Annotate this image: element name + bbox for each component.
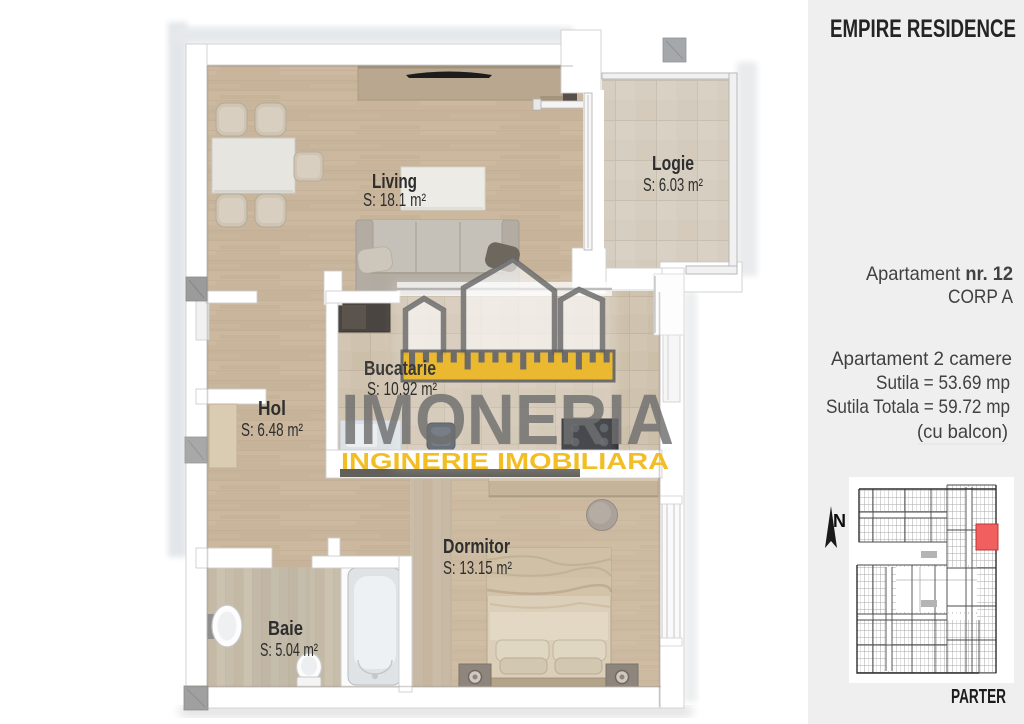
svg-text:S: 13.15 m²: S: 13.15 m² bbox=[443, 558, 512, 578]
svg-text:S: 5.04 m²: S: 5.04 m² bbox=[260, 640, 318, 660]
svg-text:Sutila Totala = 59.72 mp: Sutila Totala = 59.72 mp bbox=[826, 396, 1010, 418]
svg-text:CORP A: CORP A bbox=[948, 286, 1013, 308]
svg-text:S: 6.48 m²: S: 6.48 m² bbox=[241, 420, 303, 440]
svg-text:EMPIRE RESIDENCE: EMPIRE RESIDENCE bbox=[830, 15, 1016, 43]
svg-text:S: 18.1 m²: S: 18.1 m² bbox=[363, 190, 426, 210]
svg-text:PARTER: PARTER bbox=[951, 685, 1006, 708]
svg-text:Sutila = 53.69 mp: Sutila = 53.69 mp bbox=[876, 372, 1010, 394]
svg-text:INGINERIE IMOBILIARA: INGINERIE IMOBILIARA bbox=[341, 448, 669, 474]
svg-text:Apartament nr. 12: Apartament nr. 12 bbox=[866, 263, 1013, 285]
svg-text:Dormitor: Dormitor bbox=[443, 535, 510, 558]
svg-text:S: 6.03 m²: S: 6.03 m² bbox=[643, 175, 703, 195]
svg-text:Apartament 2 camere: Apartament 2 camere bbox=[831, 348, 1012, 370]
svg-text:Baie: Baie bbox=[268, 617, 303, 640]
svg-text:S: 10.92 m²: S: 10.92 m² bbox=[367, 379, 437, 399]
svg-text:Bucatarie: Bucatarie bbox=[364, 357, 436, 380]
svg-text:Logie: Logie bbox=[652, 152, 694, 175]
svg-text:Hol: Hol bbox=[258, 397, 286, 420]
svg-text:N: N bbox=[833, 511, 846, 531]
svg-text:(cu balcon): (cu balcon) bbox=[917, 421, 1008, 443]
